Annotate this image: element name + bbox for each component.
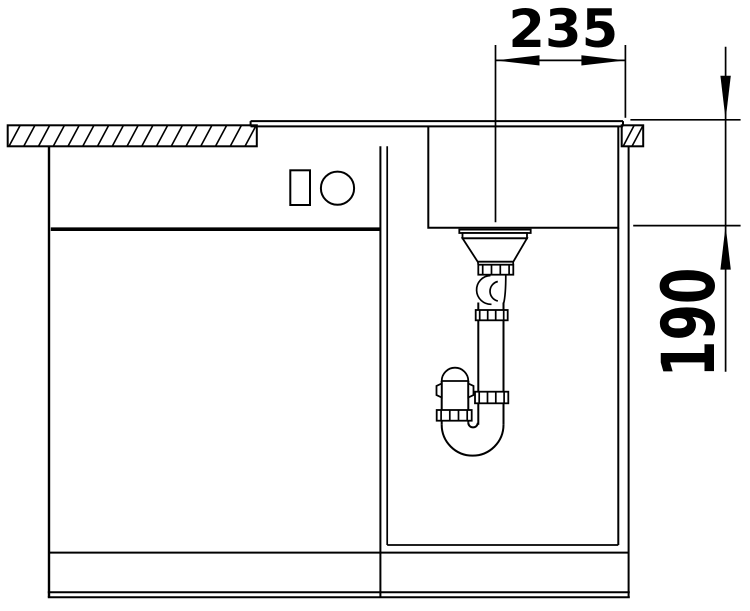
- countertop-right-section: [622, 125, 644, 146]
- elbow-inner-curve: [490, 282, 498, 302]
- countertop-left-hatching: [9, 125, 256, 146]
- dimension-depth-label: 190: [646, 268, 731, 378]
- coupling-nut-upper: [476, 310, 508, 320]
- coupling-nut-outlet-arm: [437, 410, 472, 421]
- strainer-flange: [459, 230, 530, 265]
- sink-installation-drawing: 235 190: [0, 0, 750, 611]
- technical-drawing-canvas: 235 190: [0, 0, 750, 611]
- control-rectangle-icon: [290, 170, 310, 205]
- countertop: [8, 125, 644, 146]
- dimension-width-label: 235: [508, 0, 618, 60]
- arrow-up-icon: [720, 226, 730, 270]
- drain-assembly: [437, 230, 531, 456]
- sink-bowl: [428, 127, 618, 228]
- cabinet: [48, 146, 630, 597]
- countertop-right-hatching: [623, 125, 643, 146]
- outlet-arm-right-lug: [468, 384, 473, 398]
- coupling-nut-lower: [475, 392, 508, 404]
- coupling-nuts: [437, 265, 514, 421]
- countertop-left-section: [8, 125, 257, 146]
- appliance-control-panel: [290, 170, 354, 205]
- trap-bend-outer-curve: [442, 425, 504, 456]
- sink: [251, 121, 623, 228]
- coupling-nut-strainer: [478, 265, 513, 275]
- dimension-width: 235: [496, 0, 626, 222]
- dimension-depth: 190: [630, 47, 740, 377]
- outlet-arm-left-lug: [437, 384, 442, 398]
- elbow-right-edge: [504, 275, 506, 304]
- arrow-down-icon: [720, 76, 730, 120]
- trap-bend-inner-curve: [468, 423, 478, 428]
- outlet-arm-dome-cap: [442, 368, 469, 381]
- control-knob-icon: [321, 172, 354, 205]
- sink-rim: [251, 121, 623, 126]
- strainer-cup: [463, 238, 528, 261]
- tailpipe-and-trap: [437, 275, 506, 456]
